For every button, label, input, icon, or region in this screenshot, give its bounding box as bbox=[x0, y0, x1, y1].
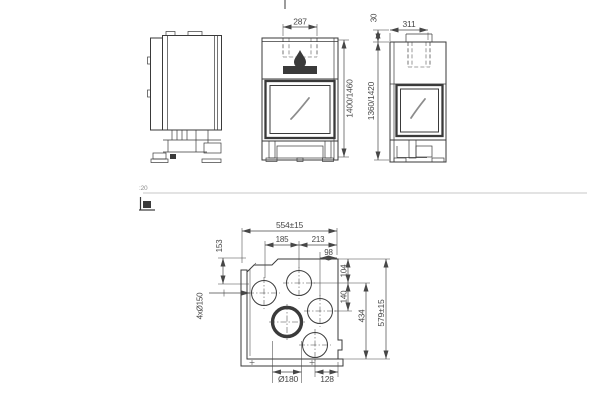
dim-label-153: 153 bbox=[215, 239, 224, 252]
dim-128: 128 bbox=[315, 359, 338, 384]
dim-label-holes: 4xØ150 bbox=[196, 292, 205, 320]
dim-label-434: 434 bbox=[358, 309, 367, 322]
dim-label-104: 104 bbox=[340, 264, 349, 277]
right-side-view: 311 30 1360/1420 bbox=[366, 13, 446, 162]
scale-divider: :20 bbox=[139, 185, 587, 210]
back-panel bbox=[151, 38, 163, 130]
base-drawer bbox=[277, 146, 323, 158]
dim-side-height: 1360/1420 bbox=[366, 42, 389, 160]
dim-label-185: 185 bbox=[276, 235, 289, 244]
dim-collar-height: 30 bbox=[370, 13, 390, 42]
projection-symbol-icon bbox=[139, 197, 155, 210]
brand-logo-icon bbox=[283, 50, 317, 74]
body-outline bbox=[163, 36, 222, 131]
dim-label-140: 140 bbox=[340, 290, 349, 303]
dim-front-flue-width: 287 bbox=[283, 17, 317, 37]
body-outline bbox=[390, 42, 446, 162]
front-view: 287 1400/1460 bbox=[262, 0, 355, 162]
dim-label-128: 128 bbox=[320, 374, 334, 384]
dim-label-overall-width: 554±15 bbox=[276, 220, 304, 230]
dim-overall-depth: 579±15 bbox=[376, 259, 386, 359]
dim-label-collar: 30 bbox=[370, 13, 379, 22]
dim-label-flue-depth: 311 bbox=[403, 19, 416, 29]
dim-front-height: 1400/1460 bbox=[338, 40, 355, 157]
dim-flue-depth: 311 bbox=[390, 19, 428, 41]
dim-label-overall-depth: 579±15 bbox=[376, 299, 386, 327]
glass-window bbox=[401, 89, 439, 132]
dim-140: 140 bbox=[340, 283, 349, 311]
base-lip bbox=[241, 270, 343, 366]
scale-label: :20 bbox=[139, 185, 148, 192]
left-side-view bbox=[148, 32, 222, 163]
fireplace-dimension-drawing: 287 1400/1460 bbox=[0, 0, 600, 400]
dim-98: 98 bbox=[320, 248, 337, 296]
front-foot bbox=[153, 153, 166, 159]
dim-label-big-hole: Ø180 bbox=[278, 374, 298, 384]
rear-foot bbox=[204, 143, 221, 153]
dim-label-flue-width: 287 bbox=[293, 17, 307, 27]
dim-holes-note: 4xØ150 bbox=[196, 290, 251, 320]
bolt bbox=[170, 154, 176, 159]
dim-104: 104 bbox=[340, 259, 349, 283]
glass-door-frame bbox=[397, 85, 443, 136]
dim-big-hole: Ø180 bbox=[273, 341, 302, 384]
glass-reflection bbox=[411, 99, 425, 118]
dim-label-213: 213 bbox=[312, 235, 325, 244]
dim-434: 434 bbox=[358, 283, 367, 359]
dim-153: 153 bbox=[215, 239, 249, 284]
dim-label-front-height: 1400/1460 bbox=[345, 79, 355, 118]
dim-label-98: 98 bbox=[324, 248, 333, 257]
dim-213: 213 bbox=[299, 235, 337, 245]
logo-text-band bbox=[283, 66, 317, 74]
glass-reflection bbox=[291, 98, 309, 119]
plan-view: 554±15 185 213 98 153 4xØ150 bbox=[196, 220, 391, 384]
dim-label-side-height: 1360/1420 bbox=[366, 81, 376, 120]
flame-icon bbox=[294, 50, 306, 68]
